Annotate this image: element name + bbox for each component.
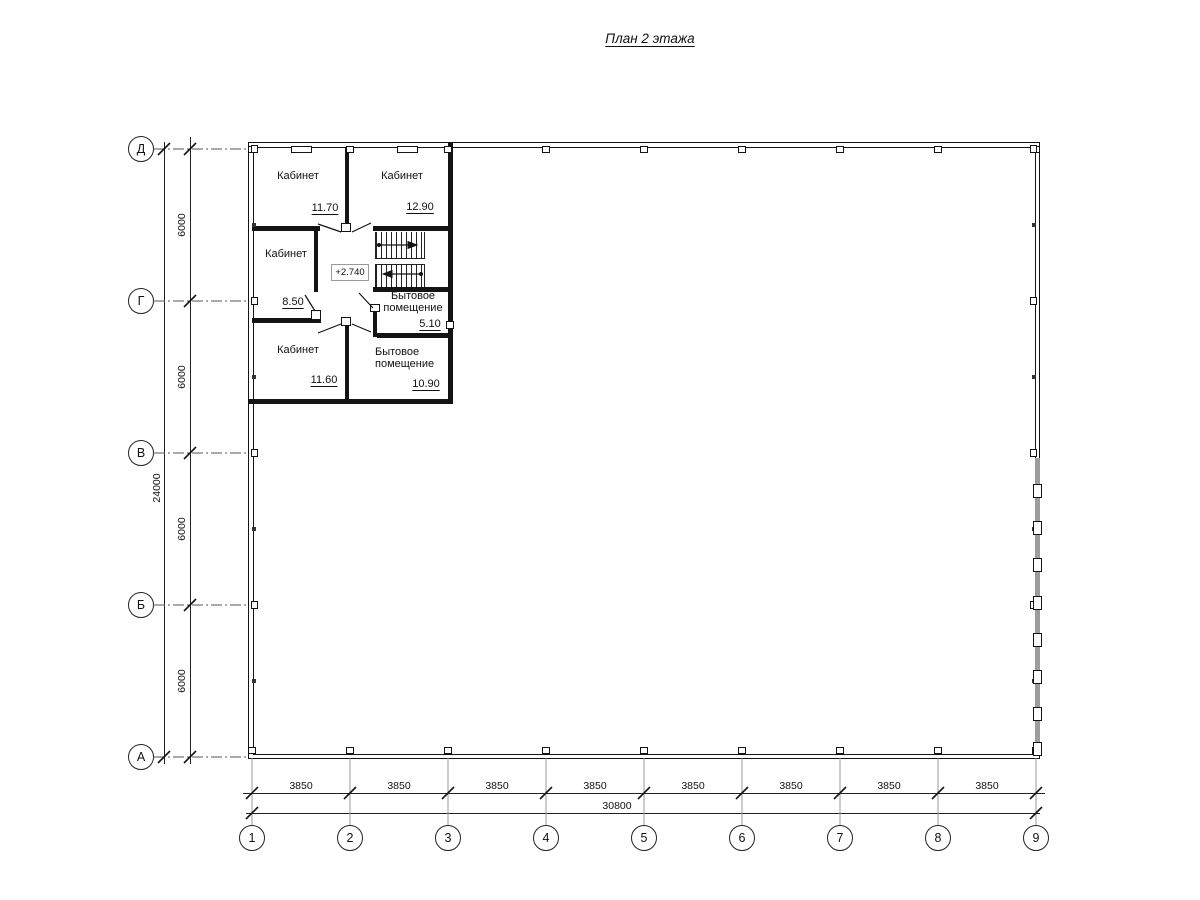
- window-opening: [1033, 742, 1042, 756]
- room-area: 12.90: [398, 201, 442, 213]
- door-jamb-8_50: [311, 310, 321, 320]
- axis-bubble-column-1: 1: [239, 825, 265, 851]
- axis-bubble-column-5: 5: [631, 825, 657, 851]
- stair-landing-line: [375, 258, 425, 265]
- dim-line-bottom-total: [246, 813, 1040, 814]
- dim-left-segment: 6000: [176, 499, 190, 559]
- column-mark: [251, 601, 258, 609]
- column-mid-mark: [252, 375, 256, 379]
- window-opening: [1033, 633, 1042, 647]
- building-outline-inner: [253, 147, 1036, 755]
- window-opening: [1033, 670, 1042, 684]
- dim-bottom-segment: 3850: [663, 780, 723, 792]
- window-opening: [1033, 596, 1042, 610]
- floor-plan-canvas: План 2 этажа +2.740 Кабинет 11.70 Кабине…: [0, 0, 1200, 900]
- column-mark: [836, 146, 844, 153]
- dim-bottom-segment: 3850: [761, 780, 821, 792]
- column-mark: [346, 146, 354, 153]
- column-mid-mark: [252, 223, 256, 227]
- office-right-wall: [448, 142, 453, 404]
- axis-bubble-column-6: 6: [729, 825, 755, 851]
- axis-bubble-row-Д: Д: [128, 136, 154, 162]
- level-mark: +2.740: [331, 264, 369, 281]
- axis-bubble-row-Б: Б: [128, 592, 154, 618]
- column-mid-mark: [1032, 223, 1036, 227]
- dim-bottom-segment: 3850: [271, 780, 331, 792]
- dim-bottom-segment: 3850: [957, 780, 1017, 792]
- column-mark: [251, 449, 258, 457]
- plan-title: План 2 этажа: [540, 31, 760, 46]
- axis-bubble-row-Г: Г: [128, 288, 154, 314]
- axis-bubble-column-9: 9: [1023, 825, 1049, 851]
- column-mark: [1030, 145, 1037, 153]
- column-mark: [640, 747, 648, 754]
- dim-left-segment: 6000: [176, 347, 190, 407]
- dim-line-left-total: [164, 142, 165, 764]
- column-mark: [444, 747, 452, 754]
- dim-bottom-segment: 3850: [467, 780, 527, 792]
- column-mark: [444, 146, 452, 153]
- dim-line-bottom-segments: [243, 793, 1045, 794]
- wall-stairwell-top: [373, 226, 448, 231]
- column-mark: [738, 146, 746, 153]
- column-mid-mark: [252, 679, 256, 683]
- axis-bubble-column-7: 7: [827, 825, 853, 851]
- column-mark: [248, 747, 256, 754]
- axis-bubble-column-8: 8: [925, 825, 951, 851]
- column-mark: [346, 747, 354, 754]
- column-mark: [1030, 449, 1037, 457]
- column-mark: [542, 146, 550, 153]
- column-mark: [542, 747, 550, 754]
- room-area: 10.90: [404, 378, 448, 390]
- axis-bubble-row-А: А: [128, 744, 154, 770]
- axis-bubble-column-2: 2: [337, 825, 363, 851]
- room-label: Бытовое помещение: [377, 290, 449, 314]
- room-area: 11.70: [303, 202, 347, 214]
- dim-bottom-segment: 3850: [369, 780, 429, 792]
- room-label: Кабинет: [362, 170, 442, 182]
- axis-bubble-column-3: 3: [435, 825, 461, 851]
- partition-bottom-rooms: [345, 325, 349, 399]
- door-jamb-bottom: [341, 317, 351, 326]
- window-opening: [1033, 484, 1042, 498]
- room-label: Кабинет: [248, 248, 324, 260]
- column-mark: [934, 146, 942, 153]
- window-opening: [1033, 558, 1042, 572]
- window-opening: [1033, 521, 1042, 535]
- top-wall-window-mark: [291, 146, 312, 153]
- dim-left-total: 24000: [151, 458, 165, 518]
- room-label: Кабинет: [258, 344, 338, 356]
- room-area: 8.50: [271, 296, 315, 308]
- axis-bubble-column-4: 4: [533, 825, 559, 851]
- room-area: 11.60: [302, 374, 346, 386]
- column-mark: [1030, 297, 1037, 305]
- dim-line-left-segments: [190, 137, 191, 764]
- dim-left-segment: 6000: [176, 651, 190, 711]
- dim-bottom-segment: 3850: [859, 780, 919, 792]
- window-opening: [1033, 707, 1042, 721]
- dim-bottom-total: 30800: [557, 800, 677, 812]
- office-bottom-wall: [248, 399, 453, 404]
- column-mark: [640, 146, 648, 153]
- wall-5_10-bottom: [377, 333, 453, 338]
- column-mark: [836, 747, 844, 754]
- wall-8_50-right: [314, 231, 318, 292]
- axis-bubble-row-В: В: [128, 440, 154, 466]
- wall-8_50-top: [252, 226, 320, 231]
- column-mark: [251, 297, 258, 305]
- column-mark: [251, 145, 258, 153]
- room-label: Кабинет: [258, 170, 338, 182]
- column-mid-mark: [252, 527, 256, 531]
- top-wall-window-mark: [397, 146, 418, 153]
- column-mid-mark: [1032, 375, 1036, 379]
- dim-left-segment: 6000: [176, 195, 190, 255]
- room-label: Бытовое помещение: [375, 346, 443, 370]
- column-mark: [934, 747, 942, 754]
- room-area: 5.10: [408, 318, 452, 330]
- dim-bottom-segment: 3850: [565, 780, 625, 792]
- column-mark: [738, 747, 746, 754]
- door-jamb-top: [341, 223, 351, 232]
